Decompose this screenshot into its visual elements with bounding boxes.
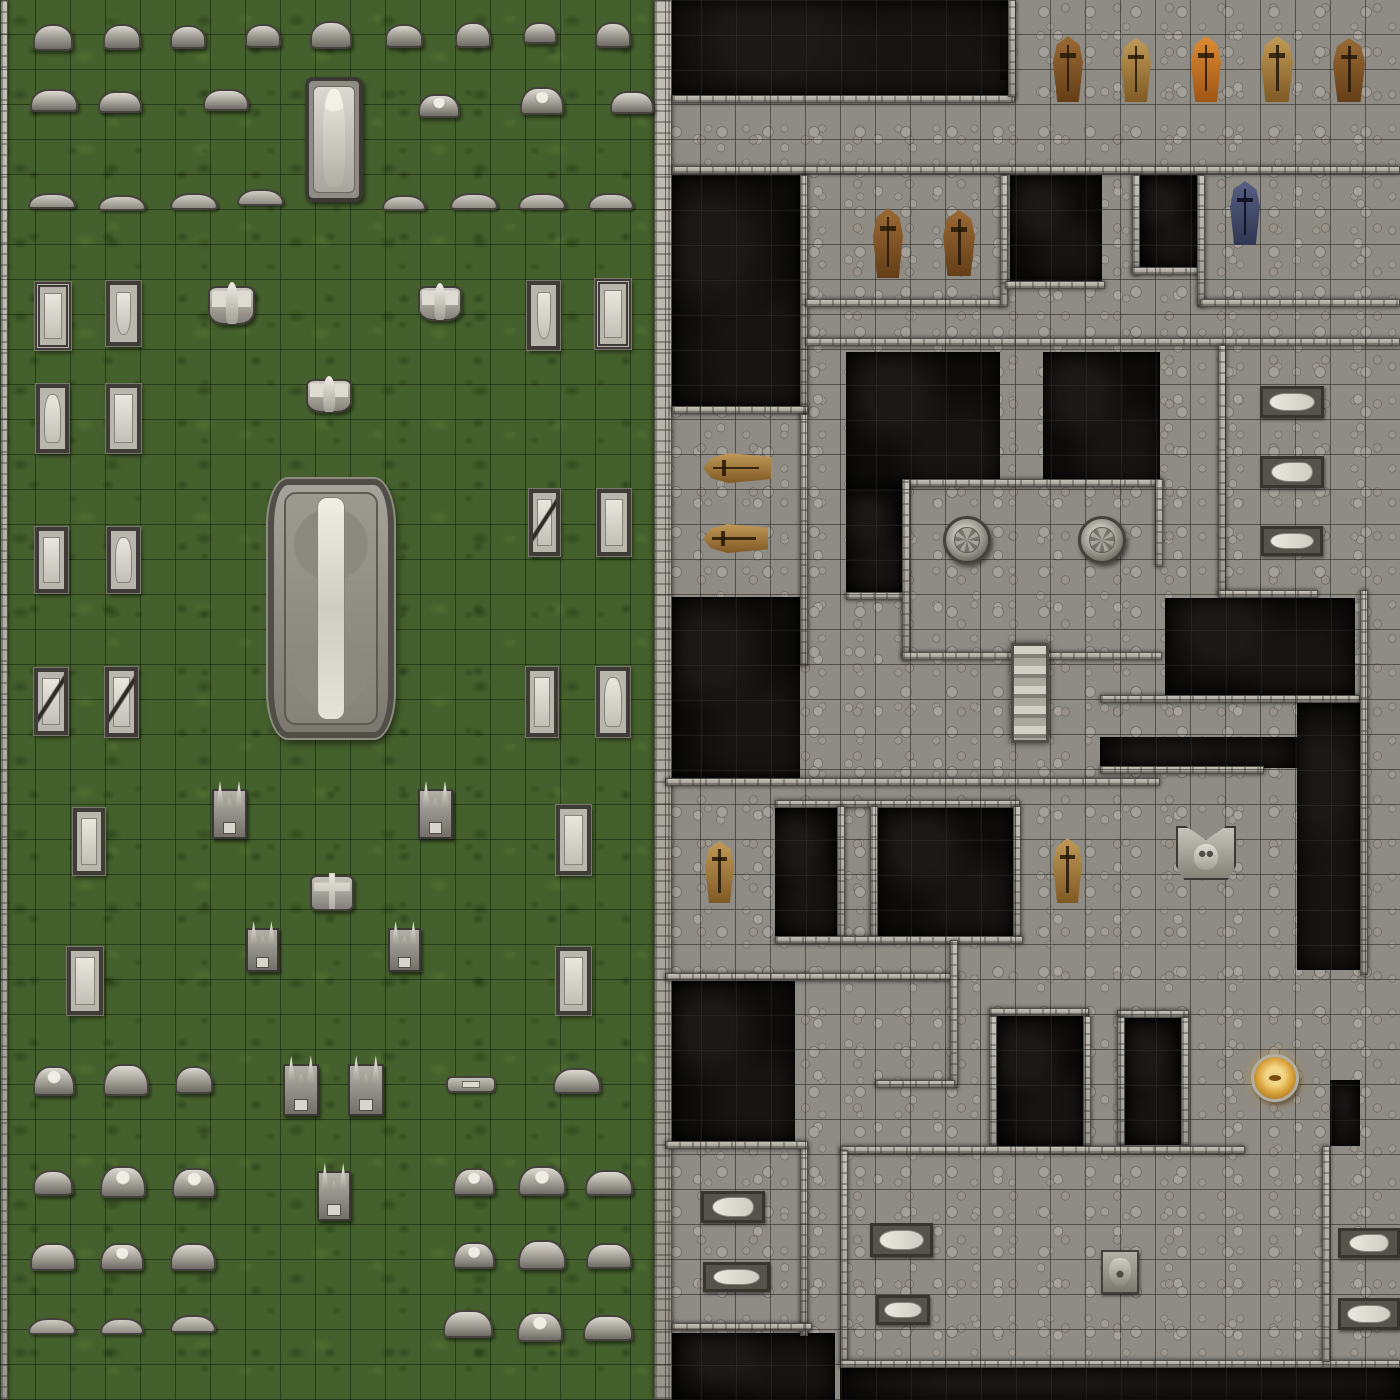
grave-slab xyxy=(35,527,68,593)
winged-angel-statue xyxy=(208,286,255,325)
winged-angel-statue xyxy=(418,286,462,321)
wide-tombstone xyxy=(30,89,78,112)
wooden-coffin-horizontal xyxy=(703,453,771,483)
stone-floor-seal xyxy=(943,516,991,564)
low-arched-tombstone xyxy=(450,193,498,210)
tombstone xyxy=(455,22,491,48)
grave-slab xyxy=(105,667,138,737)
stone-staircase xyxy=(1011,643,1049,743)
grave-slab xyxy=(34,668,68,735)
grave-slab xyxy=(556,947,591,1015)
wide-tombstone xyxy=(518,1240,566,1270)
wide-tombstone xyxy=(517,1312,563,1342)
tombstone xyxy=(595,22,631,48)
horned-monument xyxy=(418,789,453,839)
wide-tombstone xyxy=(98,91,142,113)
grave-slab xyxy=(597,489,631,556)
carved-face-relief xyxy=(1101,1250,1139,1294)
stone-floor-seal xyxy=(1078,516,1126,564)
tombstone xyxy=(245,24,281,48)
mausoleum-monument xyxy=(268,479,394,738)
burial-slab xyxy=(870,1223,933,1257)
wide-tombstone xyxy=(203,89,249,111)
crucifix-statue xyxy=(310,875,354,911)
burial-slab xyxy=(1260,386,1324,418)
wide-tombstone xyxy=(586,1243,632,1269)
burial-slab xyxy=(1338,1228,1400,1258)
low-arched-tombstone xyxy=(170,1315,216,1333)
map-objects xyxy=(0,0,1400,1400)
wooden-coffin-horizontal xyxy=(703,524,768,553)
grave-slab xyxy=(526,667,558,737)
tombstone xyxy=(385,24,423,48)
grave-slab xyxy=(67,947,103,1015)
wooden-coffin xyxy=(705,841,734,903)
grave-slab xyxy=(106,384,141,453)
tombstone xyxy=(523,22,557,44)
grave-slab xyxy=(35,282,71,350)
flat-grave-marker xyxy=(446,1076,496,1093)
wide-tombstone xyxy=(518,1166,566,1196)
horned-monument xyxy=(283,1064,319,1116)
tombstone xyxy=(170,25,206,49)
wide-tombstone xyxy=(610,91,654,114)
wide-tombstone xyxy=(100,1166,146,1198)
low-arched-tombstone xyxy=(98,195,146,211)
wide-tombstone xyxy=(453,1168,495,1196)
wooden-coffin xyxy=(1230,181,1260,245)
gargoyle-face-altar xyxy=(1176,826,1236,880)
tombstone xyxy=(310,21,352,49)
grave-slab xyxy=(595,279,631,349)
wide-tombstone xyxy=(33,1066,75,1096)
wooden-coffin xyxy=(1261,36,1293,102)
winged-angel-statue xyxy=(306,379,352,413)
horned-monument xyxy=(348,1064,384,1116)
wooden-coffin xyxy=(1191,36,1221,102)
wide-tombstone xyxy=(520,87,564,115)
low-arched-tombstone xyxy=(170,193,218,210)
wide-tombstone xyxy=(170,1243,216,1271)
low-arched-tombstone xyxy=(518,193,566,210)
wooden-coffin xyxy=(1333,38,1365,102)
burial-slab xyxy=(1260,456,1324,488)
wide-tombstone xyxy=(585,1170,633,1196)
tombstone xyxy=(175,1066,213,1094)
low-arched-tombstone xyxy=(588,193,634,210)
low-arched-tombstone xyxy=(28,193,76,209)
horned-monument xyxy=(212,789,247,839)
horned-monument xyxy=(246,928,279,972)
grave-slab xyxy=(36,384,69,453)
burial-slab xyxy=(703,1262,770,1292)
tombstone xyxy=(33,24,73,51)
tombstone xyxy=(103,24,141,50)
wide-tombstone xyxy=(443,1310,493,1338)
low-arched-tombstone xyxy=(100,1318,144,1335)
burial-slab xyxy=(1261,526,1323,556)
grave-slab xyxy=(106,281,141,346)
wooden-coffin xyxy=(1053,838,1082,903)
wide-tombstone xyxy=(453,1242,495,1269)
grave-slab xyxy=(73,808,105,875)
wide-tombstone xyxy=(172,1168,216,1198)
horned-monument xyxy=(317,1171,351,1221)
grave-slab xyxy=(596,667,630,737)
battle-map[interactable] xyxy=(0,0,1400,1400)
wooden-coffin xyxy=(873,208,903,278)
wide-tombstone xyxy=(30,1243,76,1271)
grave-slab xyxy=(107,527,140,593)
burial-slab xyxy=(876,1295,930,1325)
wide-tombstone xyxy=(583,1315,633,1341)
low-arched-tombstone xyxy=(237,189,284,206)
low-arched-tombstone xyxy=(28,1318,76,1335)
grave-slab xyxy=(527,281,560,350)
horned-monument xyxy=(388,928,421,972)
tombstone xyxy=(33,1170,73,1196)
golden-eye-emblem xyxy=(1251,1054,1299,1102)
wide-tombstone xyxy=(100,1243,144,1271)
wide-tombstone xyxy=(418,94,460,118)
wooden-coffin xyxy=(1121,38,1151,102)
burial-slab xyxy=(701,1191,765,1223)
burial-slab xyxy=(1338,1298,1400,1330)
low-arched-tombstone xyxy=(382,195,426,211)
wide-tombstone xyxy=(103,1064,149,1096)
wooden-coffin xyxy=(943,210,975,276)
grave-slab xyxy=(529,489,560,556)
grave-slab xyxy=(556,805,591,875)
angel-sarcophagus xyxy=(305,77,363,202)
wide-tombstone xyxy=(553,1068,601,1094)
wooden-coffin xyxy=(1053,36,1083,102)
